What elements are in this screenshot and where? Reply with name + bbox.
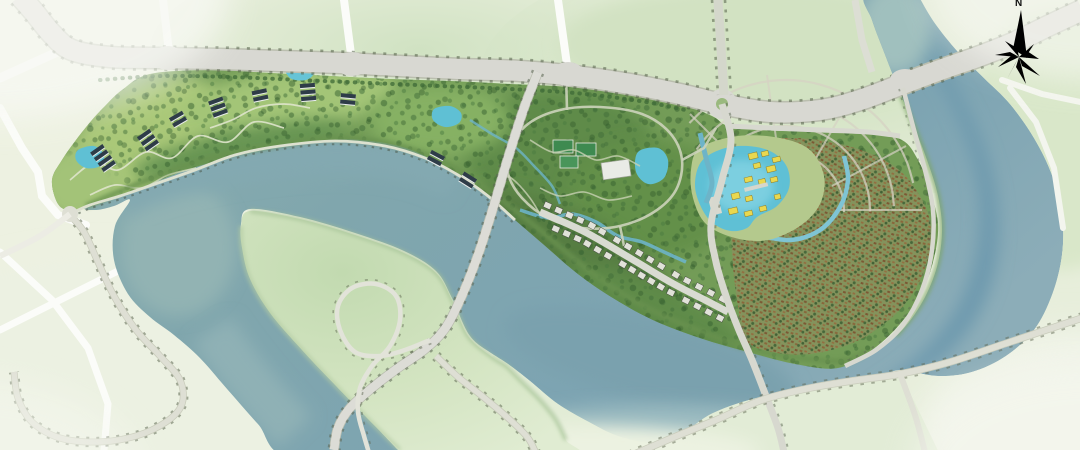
svg-text:N: N <box>1015 0 1022 9</box>
